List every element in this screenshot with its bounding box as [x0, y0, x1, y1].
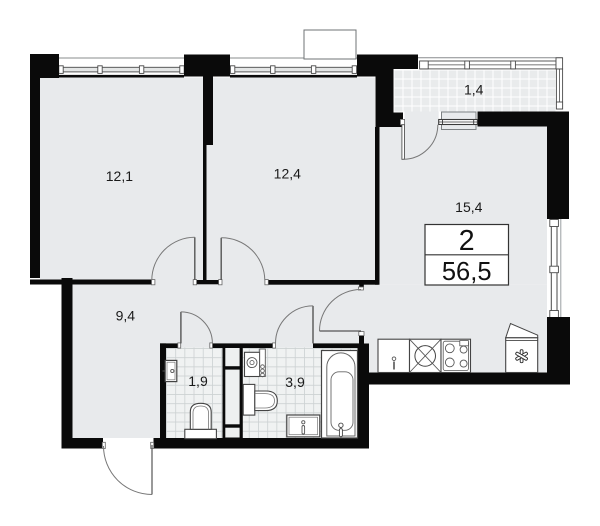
- svg-text:12,4: 12,4: [274, 165, 301, 181]
- svg-text:12,1: 12,1: [106, 168, 133, 184]
- svg-text:1,9: 1,9: [188, 373, 208, 389]
- svg-text:15,4: 15,4: [455, 199, 482, 215]
- svg-text:2: 2: [459, 225, 475, 257]
- svg-text:9,4: 9,4: [116, 307, 136, 323]
- svg-text:1,4: 1,4: [464, 81, 484, 97]
- svg-text:3,9: 3,9: [285, 374, 305, 390]
- svg-text:56,5: 56,5: [442, 258, 492, 286]
